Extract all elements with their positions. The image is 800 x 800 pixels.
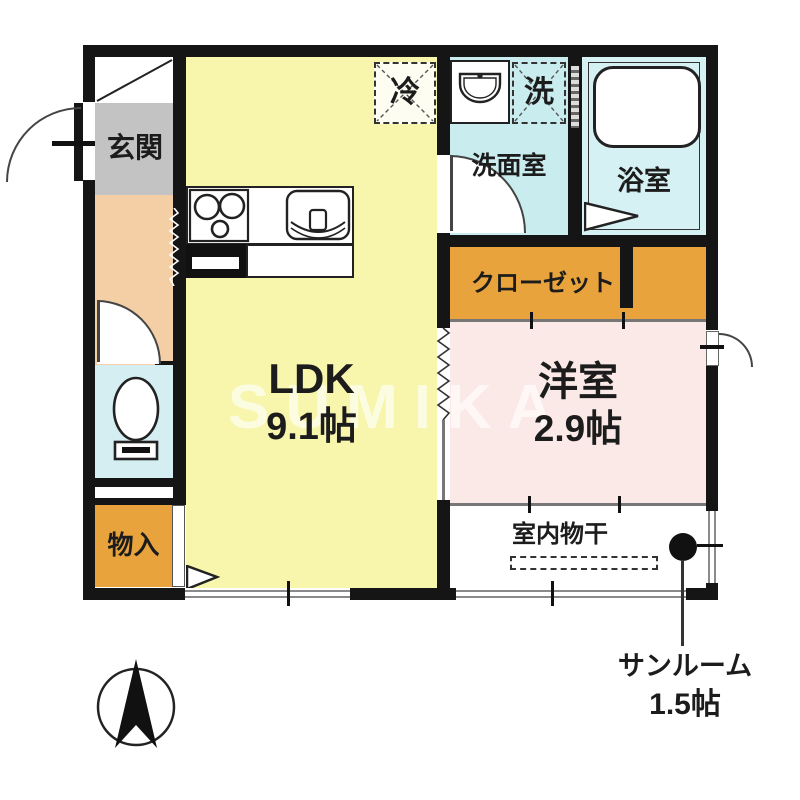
- sunroom-window-right: [706, 511, 718, 583]
- closet-slide-tick-1: [530, 312, 533, 329]
- western-size-label: 2.9帖: [450, 410, 706, 447]
- bathroom-door-icon: [584, 202, 642, 232]
- storage-label: 物入: [95, 532, 172, 558]
- room-ldk: [186, 57, 437, 588]
- toilet-icon: [108, 372, 164, 472]
- closet-slide-tick-2: [622, 312, 625, 329]
- sunroom-window-bottom: [456, 588, 686, 600]
- ldk-label: LDK: [186, 358, 437, 400]
- refrigerator-label: 冷: [374, 78, 436, 108]
- wall-left-lower: [83, 180, 95, 600]
- sunroom-callout-dot: [669, 533, 697, 561]
- wall-ldk-washroom: [437, 57, 450, 155]
- kitchen-unit-icon: [186, 186, 354, 278]
- washbasin-icon: [452, 62, 508, 122]
- wall-bottom-mid: [350, 588, 456, 600]
- wall-right-corner: [706, 583, 718, 600]
- washer-label: 洗: [512, 78, 566, 108]
- western-door-arc-icon: [719, 333, 753, 367]
- washroom-door-gap: [437, 155, 450, 233]
- ldk-size-label: 9.1帖: [186, 408, 437, 446]
- wall-toilet-bottom-a: [95, 478, 175, 487]
- sunroom-callout-line: [681, 560, 684, 646]
- sunroom-slide-tick-1: [528, 496, 531, 513]
- storage-top-slot: [100, 487, 170, 498]
- washroom-label: 洗面室: [450, 154, 568, 179]
- wall-above-closet: [437, 235, 706, 247]
- floor-plan: 冷 洗 玄関 LDK 9.1帖 洗面室 浴室 クローゼット 洋室 2: [0, 0, 800, 800]
- sunroom-sliding-line: [450, 503, 706, 506]
- entrance-step-diagonal: [95, 57, 175, 103]
- wall-ldk-closet: [437, 233, 450, 328]
- bathtub-icon: [593, 66, 701, 148]
- compass-icon: [94, 651, 182, 765]
- sunroom-size-label: 1.5帖: [613, 690, 757, 720]
- wall-top: [83, 45, 718, 57]
- washroom-bath-glazing: [571, 66, 579, 128]
- washbasin-box: [450, 60, 510, 124]
- bathroom-label: 浴室: [582, 168, 706, 195]
- sunroom-slide-tick-2: [618, 496, 621, 513]
- sunroom-label: サンルーム: [613, 653, 757, 680]
- storage-door-strip: [172, 505, 185, 587]
- western-label: 洋室: [450, 362, 706, 402]
- drying-pole-icon: [510, 556, 658, 570]
- drying-label: 室内物干: [450, 523, 670, 547]
- entrance-door-tick: [52, 141, 95, 146]
- toilet-door-leaf: [97, 300, 100, 362]
- wall-right-upper: [706, 45, 718, 330]
- ldk-window: [185, 588, 350, 600]
- wall-left-upper: [83, 45, 95, 102]
- entrance-alcove: [95, 57, 175, 103]
- wall-right-mid: [706, 366, 718, 511]
- ldk-window-tick: [287, 581, 290, 606]
- corridor-accordion-icon: [169, 208, 180, 286]
- western-door-tick: [700, 345, 724, 349]
- sunroom-right-window-tick: [697, 544, 723, 547]
- genkan-label: 玄関: [95, 134, 175, 162]
- closet-sliding-line: [450, 319, 706, 322]
- wall-bottom-left: [83, 588, 185, 600]
- wall-toilet-bottom-b: [95, 498, 175, 505]
- sunroom-window-tick: [551, 581, 554, 606]
- wall-ldk-sunroom: [437, 500, 450, 588]
- closet-label: クローゼット: [450, 272, 636, 296]
